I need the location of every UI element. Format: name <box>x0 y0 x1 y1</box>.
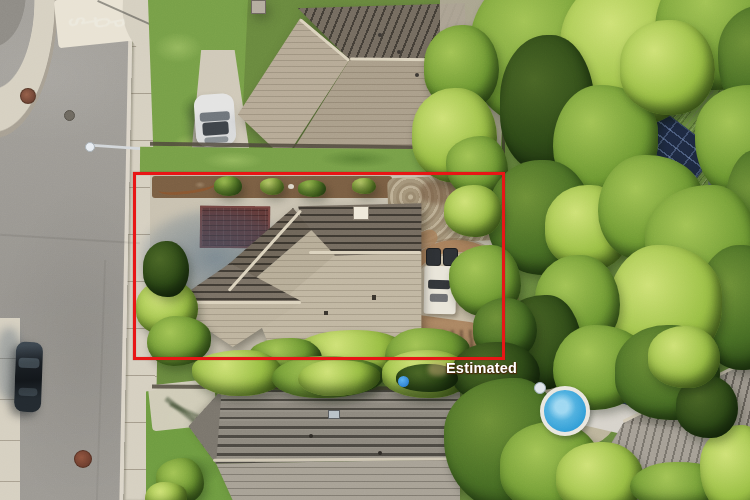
fence-line-vertical <box>502 0 505 172</box>
blue-ball <box>398 376 409 387</box>
garden-stone <box>288 184 294 189</box>
curb-corner-arc <box>0 0 60 160</box>
neighbor-roof-bottom-right <box>558 352 750 500</box>
watermark-smudge <box>428 362 448 376</box>
lounge-chair <box>426 248 441 266</box>
round-pool <box>540 386 590 436</box>
car-sunroof <box>202 121 229 136</box>
backyard-patio-top <box>440 0 510 168</box>
chimney <box>251 0 266 14</box>
streetlight-lamp <box>85 142 95 152</box>
patio-umbrella <box>464 106 492 134</box>
lounge-chair <box>443 248 458 266</box>
tree-canopy <box>545 185 630 270</box>
roof-vent <box>324 311 328 315</box>
roof-vent <box>397 50 401 54</box>
roof-ridge <box>170 301 301 304</box>
parked-car-silver <box>193 93 237 148</box>
tree-canopy <box>500 35 595 175</box>
subject-house-roof <box>162 200 424 358</box>
roof-ridge <box>309 251 422 254</box>
neighbor-house-bottom <box>186 390 460 500</box>
aerial-photo: STOP <box>0 0 750 500</box>
boundary-estimated-label: Estimated <box>446 360 517 376</box>
car-windshield <box>18 358 39 369</box>
roof-vent <box>372 295 376 300</box>
fire-pit <box>462 30 484 52</box>
roof-vent <box>378 451 382 455</box>
sink <box>430 294 448 302</box>
chimney <box>353 206 369 220</box>
neighbor-house-top <box>232 0 467 166</box>
pool-filter <box>534 382 546 394</box>
stop-road-marking: STOP <box>71 14 125 34</box>
manhole-cover <box>20 88 36 104</box>
manhole-cover <box>74 450 92 468</box>
manhole-cover <box>64 110 75 121</box>
shaded-roof-far-right <box>706 140 750 270</box>
dirt-patch <box>420 180 470 204</box>
parked-car-dark <box>14 342 43 413</box>
grill <box>428 280 450 289</box>
bbq-island <box>424 266 457 315</box>
roof-vent <box>378 33 382 37</box>
car-rear-glass <box>18 388 37 397</box>
skylight <box>328 410 340 419</box>
